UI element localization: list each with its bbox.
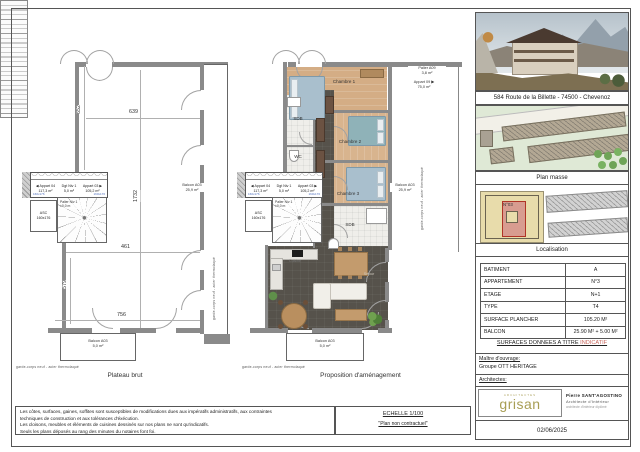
wall	[322, 160, 388, 163]
map-building	[527, 134, 629, 163]
guardrail-note: garde-corps neuf - acier thermolaqué	[242, 365, 305, 369]
date-bar: 02/06/2025	[476, 421, 628, 440]
loc-building-no: N°03	[503, 202, 513, 207]
palier-a09-label: Palier A093,8 m²	[408, 66, 446, 75]
table-row: BALCON25.90 M² + 5.00 M²	[481, 327, 625, 339]
room-label-chambre1: Chambre 1	[323, 79, 365, 85]
room-label-sdb: SDB	[288, 116, 308, 122]
shower	[366, 208, 387, 224]
plan-masse-caption: Plan masse	[475, 171, 629, 185]
architects-label: Architectes:	[479, 377, 507, 383]
sofa-chaise	[313, 283, 331, 309]
guardrail-note: garde-corps neuf - acier thermolaqué	[16, 365, 79, 369]
dim-label: 1732	[133, 190, 140, 202]
wardrobe	[316, 118, 325, 142]
room-label-cuisine: Cuisine	[282, 259, 308, 263]
architects-box: Architectes:	[476, 375, 628, 387]
guardrail-note: garde-corps neuf - acier thermolaqué	[420, 120, 424, 230]
scale-box: ECHELLE 1/100 "Plan non contractuel"	[335, 406, 471, 435]
loc-building	[546, 190, 628, 213]
stool	[303, 300, 308, 305]
photo-house-body	[512, 41, 578, 75]
surfaces-note: SURFACES DONNEES A TITRE INDICATIF	[476, 340, 628, 346]
surfaces-note-accent: INDICATIF	[580, 340, 607, 346]
dim-line	[84, 66, 85, 170]
grisan-logo: ARCHITECTES grisan	[478, 389, 562, 417]
wall	[385, 248, 389, 262]
arrow-right-icon: ▶	[431, 80, 434, 84]
dim-line	[70, 258, 71, 324]
address-text: 584 Route de la Billette - 74500 - Cheve…	[494, 95, 610, 101]
localisation-map: N°03	[476, 189, 628, 243]
wall	[22, 172, 30, 198]
photo-balcony	[514, 59, 574, 62]
legal-notes: Les côtes, surfaces, gaines, soffites so…	[15, 406, 335, 435]
dresser	[360, 69, 384, 78]
dim-label: 579	[62, 280, 69, 289]
table-row: TYPET4	[481, 302, 625, 315]
wall	[378, 328, 392, 333]
contract-note: "Plan non contractuel"	[336, 421, 470, 427]
dgt-label: Dgt Niv 15,0 m²	[60, 184, 78, 193]
wall	[237, 172, 245, 198]
dim-label: 652	[76, 105, 83, 114]
arrow-right-icon: ▶	[99, 184, 102, 188]
landing-band: ◀ Appart 04117,3 m² Dgt Niv 15,0 m² Appa…	[30, 172, 108, 198]
date-text: 02/06/2025	[537, 428, 567, 434]
localisation-caption: Localisation	[475, 243, 629, 257]
left-plan-title: Plateau brut	[60, 372, 190, 379]
dim-line	[55, 320, 200, 321]
photo-balcony	[514, 50, 574, 53]
wall	[283, 62, 287, 172]
legal-line: Seuls les plans déposés au rang des minu…	[20, 429, 330, 436]
balcony-label: Balcon A03 25,9 m²	[176, 183, 208, 192]
table-row: SURFACE PLANCHER105.20 M²	[481, 314, 625, 327]
photo-tree	[482, 31, 494, 49]
side-balcony	[204, 64, 228, 344]
legal-line: Les côtes, surfaces, gaines, soffites so…	[20, 409, 330, 416]
closet-arcs	[246, 173, 322, 180]
wall	[75, 62, 79, 174]
door-dim: 160x176	[248, 192, 260, 196]
sideboard	[335, 309, 367, 321]
room-label-sejour: Séjour	[356, 272, 382, 276]
owner-name: Groupe OTT HERITAGE	[479, 364, 628, 372]
owner-label: Maître d'ouvrage:	[479, 356, 628, 364]
wall	[204, 334, 230, 344]
logo-box: ARCHITECTES grisan Pierre SANT'AGOSTINO …	[476, 387, 628, 421]
legal-line: Les cloisons, meubles et éléments de cui…	[20, 422, 330, 429]
architect-note: architecte d'intérieur diplômé	[566, 405, 626, 410]
table-row: BATIMENTA	[481, 264, 625, 277]
project-photo	[475, 12, 629, 91]
guardrail-note: garde-corps neuf - acier thermolaqué	[212, 205, 216, 320]
chair	[348, 275, 352, 279]
table-row: ETAGEN+1	[481, 289, 625, 302]
elevator: ASC 160x176	[245, 200, 272, 232]
map-building	[489, 147, 515, 165]
stool	[303, 324, 308, 329]
photo-bushes	[596, 71, 626, 87]
right-plan-title: Proposition d'aménagement	[288, 372, 433, 379]
map-building	[480, 130, 493, 147]
landing-label: Palier Niv 1±0,0 m	[275, 200, 301, 209]
legal-line: techniques de construction et aux toléra…	[20, 416, 330, 423]
cooktop	[292, 250, 303, 257]
stool	[278, 324, 283, 329]
dim-label: 639	[128, 110, 139, 115]
wall	[385, 282, 389, 302]
arrow-right-icon: ▶	[314, 184, 317, 188]
door-dim: 160x176	[308, 192, 320, 196]
washbasin	[287, 97, 301, 107]
door-dim: 160x176	[93, 192, 105, 196]
room-label-wc: WC	[290, 154, 306, 160]
landing-label: Palier Niv 1±0,0 m	[60, 200, 86, 209]
loc-courtyard	[506, 211, 518, 223]
logo-name-text: grisan	[479, 397, 561, 411]
address-bar: 584 Route de la Billette - 74500 - Cheve…	[475, 91, 629, 105]
balcony-edge	[458, 64, 459, 252]
chair	[338, 247, 342, 251]
wall	[250, 328, 288, 333]
landing-band: ◀ Appart 04117,3 m² Dgt Niv 15,0 m² Appa…	[245, 172, 323, 198]
stool	[278, 300, 283, 305]
plan-sheet: garde-corps neuf - acier thermolaqué Bal…	[0, 0, 640, 452]
chair	[338, 275, 342, 279]
loc-building	[548, 217, 628, 238]
plant	[367, 311, 382, 326]
wall	[265, 245, 268, 330]
chair	[358, 247, 362, 251]
dim-line	[86, 118, 200, 119]
plant	[268, 291, 278, 301]
wardrobe	[325, 96, 334, 114]
room-label-chambre3: Chambre 3	[328, 191, 368, 197]
balcony-label: Balcon A035,0 m²	[60, 339, 136, 348]
title-block-column: 584 Route de la Billette - 74500 - Cheve…	[475, 12, 629, 440]
appart-09-label: Appart 09 ▶ 75,0 m²	[404, 80, 444, 89]
table-row: APPARTEMENTN°3	[481, 277, 625, 290]
dgt-label: Dgt Niv 15,0 m²	[275, 184, 293, 193]
info-table: BATIMENTA APPARTEMENTN°3 ETAGEN+1 TYPET4…	[480, 263, 626, 339]
wall	[322, 203, 388, 206]
wall	[176, 328, 202, 333]
wall	[285, 145, 313, 147]
dim-label: 461	[120, 245, 131, 250]
architect-identity: Pierre SANT'AGOSTINO Architecte d'Intéri…	[566, 392, 626, 411]
door-dim: 160x176	[33, 192, 45, 196]
closet-arcs	[31, 173, 107, 180]
wall	[388, 62, 392, 250]
balcony-label: Balcon A0325,9 m²	[390, 183, 420, 192]
scale-label: ECHELLE 1/100	[336, 411, 470, 417]
dim-line	[66, 252, 200, 253]
dim-label: 756	[116, 313, 127, 318]
owner-box: Maître d'ouvrage: Groupe OTT HERITAGE	[476, 353, 628, 375]
architect-name: Pierre SANT'AGOSTINO	[566, 392, 626, 399]
balcony-label: Balcon A035,0 m²	[286, 339, 364, 348]
plan-masse-map	[475, 105, 629, 171]
sink	[272, 264, 281, 271]
elevator: ASC 160x176	[30, 200, 57, 232]
chair	[348, 247, 352, 251]
map-trees	[594, 150, 602, 158]
